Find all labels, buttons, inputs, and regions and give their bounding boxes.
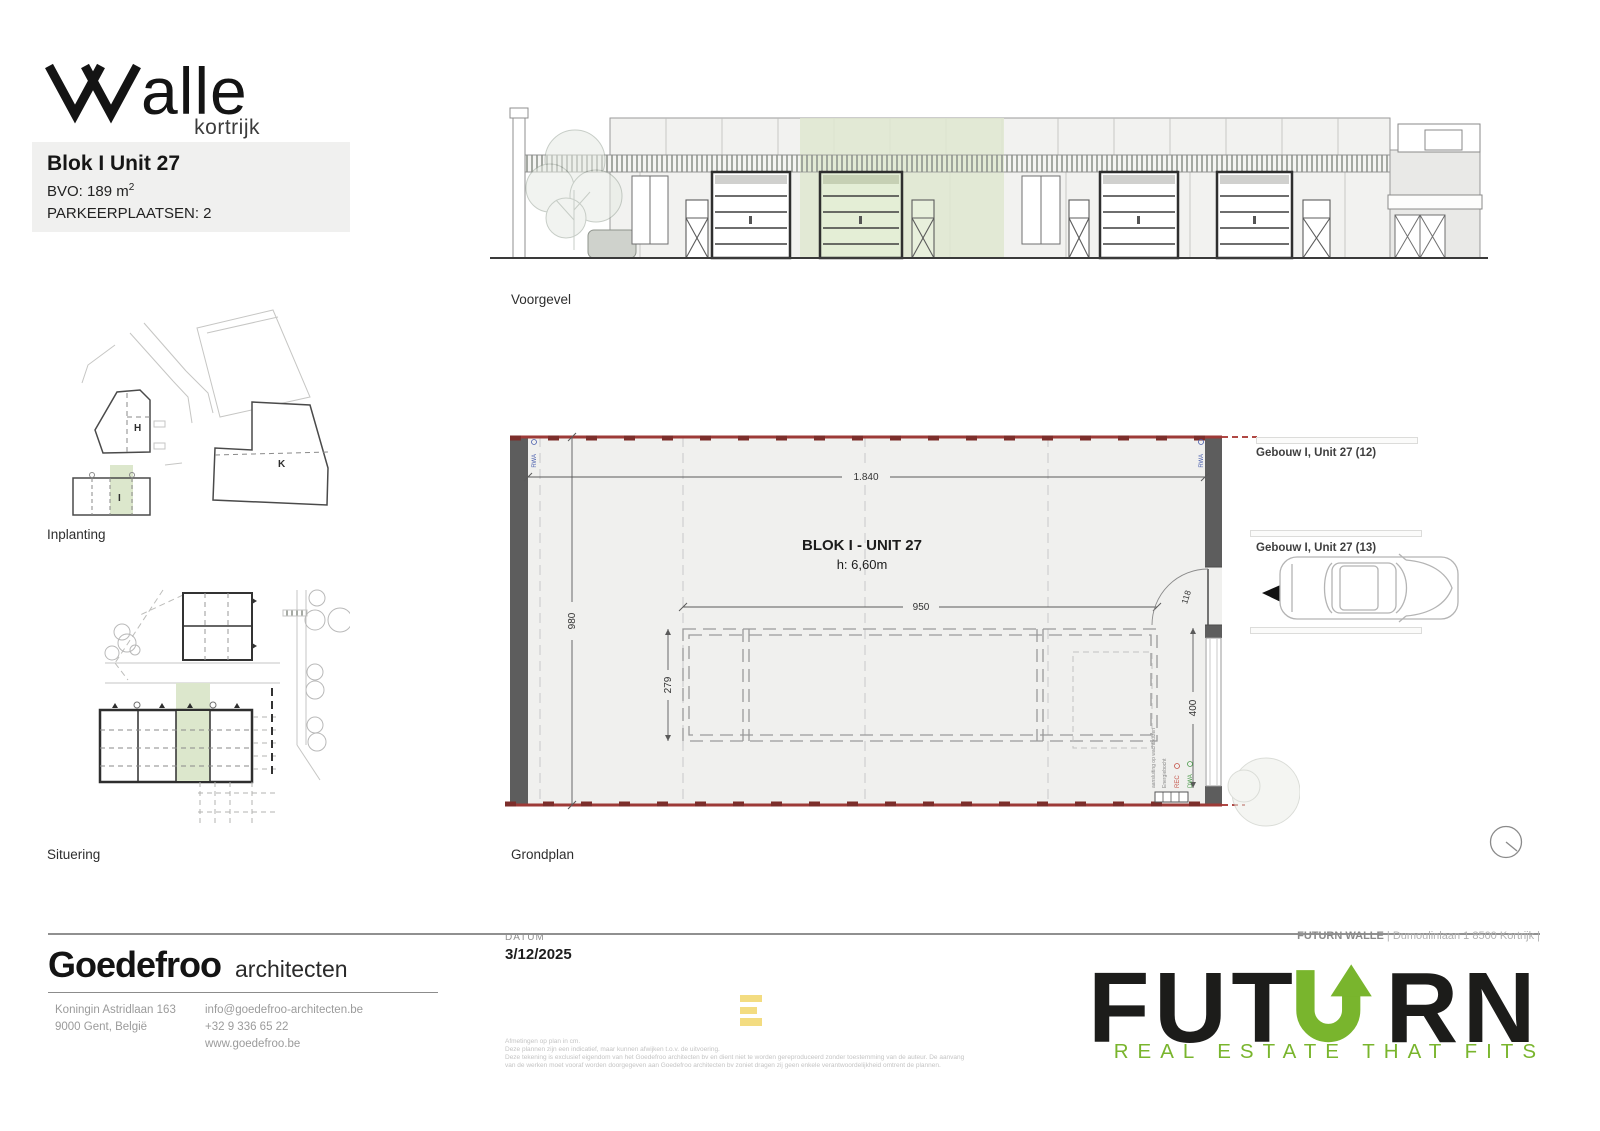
entry-door-unit27 <box>912 200 934 258</box>
project-reference-address: | Dumoulinlaan 1 8500 Kortrijk | <box>1387 930 1540 942</box>
building-k: K <box>213 402 328 505</box>
annex-building <box>1388 124 1482 258</box>
futurn-logo-left: FUT <box>1088 962 1297 1048</box>
dim-total-depth-label: 980 <box>567 612 578 629</box>
gate-opening <box>1206 638 1221 786</box>
unit-highlight-situering <box>176 711 210 781</box>
disclaimer-line: van de werken moet vooraf worden doorgeg… <box>505 1062 1185 1070</box>
garage-door <box>1100 172 1178 258</box>
architect-address: Koningin Astridlaan 163 9000 Gent, Belgi… <box>55 1002 176 1036</box>
tree-icons <box>105 624 140 660</box>
architect-name: Goedefroo <box>48 944 221 986</box>
tree-icons-right <box>305 590 350 751</box>
disclaimer-line: Deze tekening is exclusief eigendom van … <box>505 1054 1185 1062</box>
floorplan-title: BLOK I - UNIT 27 <box>802 537 922 554</box>
inplanting-map: H K I <box>70 305 340 525</box>
situering-label: Situering <box>47 847 100 862</box>
walle-logo-sub: kortrijk <box>150 116 260 140</box>
architect-website: www.goedefroo.be <box>205 1036 363 1053</box>
futurn-mark-icon <box>740 995 762 1002</box>
disclaimer-line: Afmetingen op plan in cm. <box>505 1038 1185 1046</box>
plan-sheet: alle kortrijk Blok I Unit 27 BVO: 189 m2… <box>0 0 1600 1131</box>
disclaimer: Afmetingen op plan in cm. Deze plannen z… <box>505 1038 1185 1070</box>
upper-building <box>183 593 257 660</box>
futurn-logo: FUT RN <box>1088 962 1540 1048</box>
unit-row-building <box>100 702 252 782</box>
unit-highlight-situering-top <box>176 683 210 710</box>
north-indicator-icon <box>1489 825 1523 859</box>
building-i: I <box>73 465 150 515</box>
floorplan-height: h: 6,60m <box>837 557 888 572</box>
unit-bvo: BVO: 189 m2 <box>47 182 134 200</box>
architect-contact: info@goedefroo-architecten.be +32 9 336 … <box>205 1002 363 1053</box>
building-i-label: I <box>118 493 121 504</box>
project-reference-name: FUTURN WALLE <box>1297 930 1384 942</box>
dim-mezz-depth-label: 279 <box>663 676 674 693</box>
window <box>1022 176 1060 244</box>
building-h-label: H <box>134 423 141 434</box>
unit-parking: PARKEERPLAATSEN: 2 <box>47 205 212 222</box>
garage-door <box>1217 172 1292 258</box>
entry-door <box>1303 200 1330 258</box>
futurn-tagline: REAL ESTATE THAT FITS <box>1114 1040 1545 1064</box>
building-k-label: K <box>278 459 286 470</box>
garage-door <box>712 172 790 258</box>
futurn-logo-u-arrow-icon <box>1305 964 1371 1033</box>
rwa-left-label: RWA <box>532 454 538 468</box>
elevation-drawing <box>490 100 1490 275</box>
chimney <box>510 108 528 258</box>
architect-address1: Koningin Astridlaan 163 <box>55 1002 176 1019</box>
parking-line <box>1250 530 1422 537</box>
floor <box>528 437 1205 805</box>
datum-value: 3/12/2025 <box>505 946 572 963</box>
futurn-logo-right: RN <box>1386 962 1540 1048</box>
dwa-label: DWA <box>1188 774 1194 788</box>
dim-mezz-width-label: 950 <box>913 602 930 613</box>
disclaimer-line: Deze plannen zijn een indicatief, maar k… <box>505 1046 1185 1054</box>
entry-door <box>1069 200 1089 258</box>
futurn-mark-icon <box>740 1018 762 1026</box>
meter-box <box>1155 792 1188 802</box>
architect-email: info@goedefroo-architecten.be <box>205 1002 363 1019</box>
car-top-view <box>1278 552 1462 624</box>
architect-phone: +32 9 336 65 22 <box>205 1019 363 1036</box>
walle-w-glyph <box>49 66 137 114</box>
parking-line <box>1250 627 1422 634</box>
architect-suffix: architecten <box>235 956 348 983</box>
note-energie: Energiebocht <box>1162 758 1168 788</box>
unit-title: Blok I Unit 27 <box>47 152 180 176</box>
dim-total-width-label: 1.840 <box>853 472 878 483</box>
futurn-mark-icon <box>740 1007 757 1014</box>
architect-logo: Goedefroo architecten <box>48 944 348 986</box>
road <box>105 663 280 683</box>
architect-address2: 9000 Gent, België <box>55 1019 176 1036</box>
unit-bvo-sup: 2 <box>129 182 135 193</box>
rwa-right-label: RWA <box>1199 454 1205 468</box>
context-lines <box>115 590 183 680</box>
architect-divider <box>48 992 438 993</box>
garage-door-unit27 <box>820 172 902 258</box>
side-road <box>283 590 320 780</box>
window <box>632 176 668 244</box>
project-reference: FUTURN WALLE | Dumoulinlaan 1 8500 Kortr… <box>1297 930 1540 942</box>
grondplan-label: Grondplan <box>511 847 574 862</box>
inplanting-label: Inplanting <box>47 527 106 542</box>
unit-bvo-text: BVO: 189 m <box>47 183 129 200</box>
rec-label: REC <box>1175 775 1181 788</box>
entry-door <box>686 200 708 258</box>
facade-band-hatch <box>518 155 1390 172</box>
building-h: H <box>95 390 150 453</box>
neighbor-unit12-label: Gebouw I, Unit 27 (12) <box>1256 447 1376 459</box>
shrub <box>588 230 636 258</box>
datum-label: DATUM <box>505 932 545 943</box>
dim-gate-label: 400 <box>1188 699 1199 716</box>
parking-line <box>1256 437 1418 444</box>
floorplan-drawing: 1.840 980 BLOK I - UNIT 27 h: 6,60m 950 … <box>500 430 1300 830</box>
tree-icon <box>1228 758 1300 826</box>
note-aansluiting: aansluiting op wachtbuizen <box>1151 728 1157 788</box>
elevation-label: Voorgevel <box>511 292 571 307</box>
situering-map <box>70 585 350 865</box>
